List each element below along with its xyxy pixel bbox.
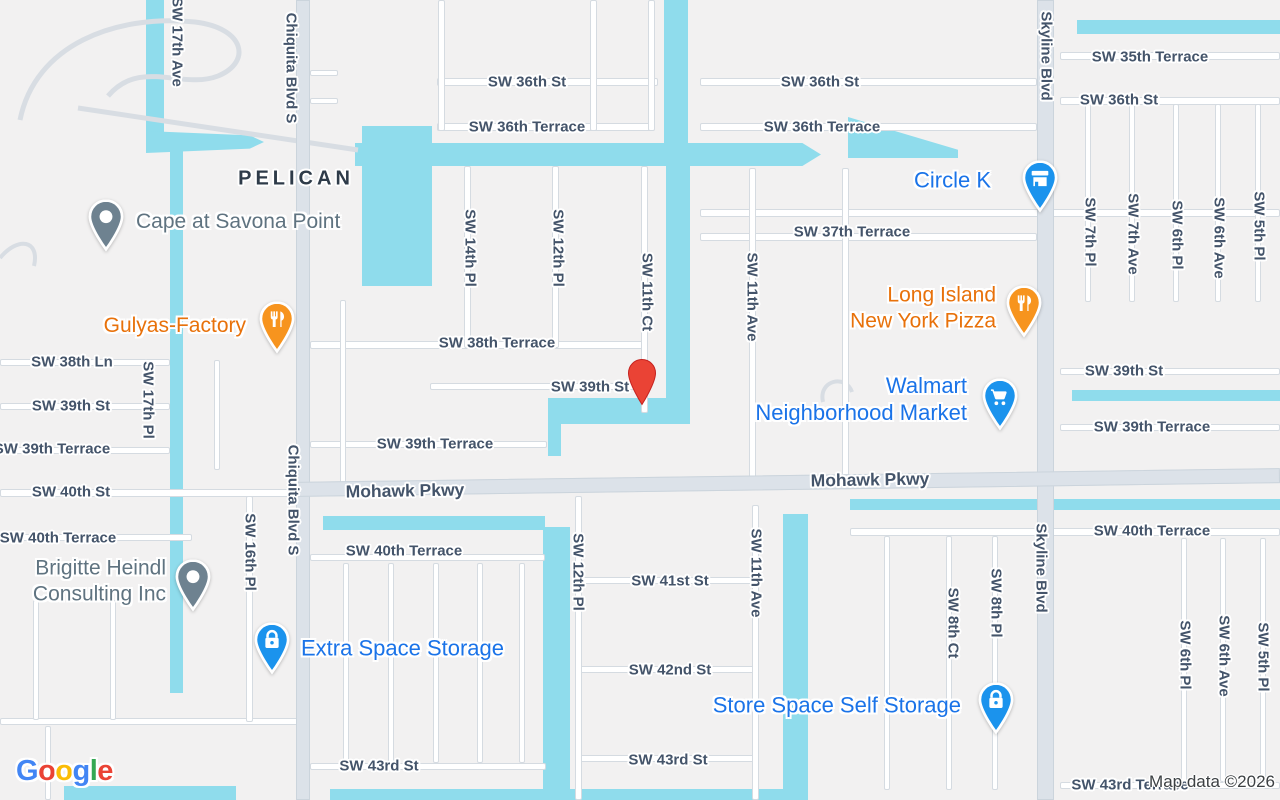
road-minor	[842, 168, 849, 480]
google-logo-letter: G	[16, 755, 38, 787]
road-minor	[343, 563, 349, 763]
street-label: SW 8th Pl	[988, 568, 1005, 637]
street-label: SW 39th Terrace	[377, 436, 493, 453]
dot-icon	[171, 559, 215, 613]
road-minor	[648, 0, 655, 131]
street-label: SW 36th Terrace	[764, 119, 880, 136]
poi-label-cape-at-savona-point[interactable]: Cape at Savona Point	[136, 209, 340, 235]
street-label: SW 39th St	[551, 379, 629, 396]
street-label: SW 36th Terrace	[469, 119, 585, 136]
road-minor	[0, 718, 298, 725]
street-label: SW 40th Terrace	[0, 530, 116, 547]
street-label: SW 41st St	[631, 573, 709, 590]
street-label: SW 17th Ave	[169, 0, 186, 87]
road-minor	[340, 300, 346, 490]
street-label: Mohawk Pkwy	[345, 479, 464, 502]
road-minor	[438, 0, 445, 131]
street-label: SW 12th Pl	[570, 533, 587, 611]
street-label: Chiquita Blvd S	[283, 13, 300, 124]
street-label: SW 36th St	[488, 74, 566, 91]
restaurant-icon	[255, 301, 299, 355]
road-minor	[477, 563, 483, 763]
street-label: SW 8th Ct	[945, 588, 962, 659]
street-label: Mohawk Pkwy	[810, 468, 929, 491]
street-label: SW 35th Terrace	[1092, 49, 1208, 66]
map-canvas[interactable]: SW 36th StSW 36th TerraceSW 36th StSW 36…	[0, 0, 1280, 800]
street-label: SW 36th St	[1080, 92, 1158, 109]
store-icon	[1018, 160, 1062, 214]
street-label: SW 40th Terrace	[346, 543, 462, 560]
poi-label-circle-k[interactable]: Circle K	[914, 168, 991, 195]
road-minor	[310, 70, 338, 76]
street-label: SW 5th Pl	[1255, 622, 1272, 691]
street-label: SW 39th Terrace	[1094, 419, 1210, 436]
poi-pin-gulyas-factory[interactable]	[255, 301, 299, 360]
street-label: SW 39th St	[32, 398, 110, 415]
street-label: SW 11th Ct	[639, 253, 656, 331]
road-skyline-blvd	[1037, 0, 1054, 800]
street-label: SW 37th Terrace	[794, 224, 910, 241]
road-minor	[214, 360, 220, 470]
lock-icon	[974, 682, 1018, 736]
road-minor	[433, 563, 439, 763]
poi-pin-circle-k[interactable]	[1018, 160, 1062, 219]
poi-pin-extra-space-storage[interactable]	[250, 622, 294, 681]
street-label: SW 11th Ave	[748, 529, 765, 618]
poi-label-brigitte-heindl-consulting-inc[interactable]: Brigitte HeindlConsulting Inc	[33, 555, 166, 606]
poi-pin-walmart-neighborhood-market[interactable]	[978, 378, 1022, 437]
road-minor	[110, 600, 116, 720]
poi-label-walmart-neighborhood-market[interactable]: WalmartNeighborhood Market	[755, 373, 967, 427]
street-label: SW 11th Ave	[744, 253, 761, 342]
street-label: SW 5th Pl	[1251, 191, 1268, 260]
street-label: SW 43rd St	[339, 758, 418, 775]
road-minor	[590, 0, 597, 131]
street-label: SW 6th Ave	[1211, 197, 1228, 278]
street-label: SW 6th Ave	[1216, 615, 1233, 696]
area-label-pelican: PELICAN	[238, 168, 354, 191]
map-attribution: Map data ©2026	[1149, 772, 1275, 792]
google-logo-letter: o	[38, 755, 55, 787]
road-minor	[519, 563, 525, 763]
road-minor	[388, 563, 394, 763]
street-label: SW 36th St	[781, 74, 859, 91]
street-label: Chiquita Blvd S	[285, 445, 302, 556]
road-minor	[850, 528, 1280, 536]
street-label: SW 39th St	[1085, 363, 1163, 380]
street-label: SW 6th Pl	[1169, 200, 1186, 269]
road-minor	[946, 536, 952, 790]
poi-label-gulyas-factory[interactable]: Gulyas-Factory	[104, 313, 246, 339]
google-logo-letter: g	[73, 755, 90, 787]
street-label: SW 16th Pl	[242, 513, 259, 591]
destination-marker[interactable]	[626, 358, 658, 411]
lock-icon	[250, 622, 294, 676]
poi-label-store-space-self-storage[interactable]: Store Space Self Storage	[713, 693, 961, 720]
street-label: SW 7th Ave	[1125, 193, 1142, 274]
street-label: SW 17th Pl	[140, 361, 157, 439]
street-label: SW 39th Terrace	[0, 441, 110, 458]
street-label: SW 7th Pl	[1082, 197, 1099, 266]
street-label: SW 14th Pl	[462, 209, 479, 287]
road-minor	[700, 209, 1280, 217]
street-label: SW 12th Pl	[550, 209, 567, 287]
street-label: SW 38th Ln	[31, 354, 113, 371]
restaurant-icon	[1002, 285, 1046, 339]
poi-pin-brigitte-heindl-consulting-inc[interactable]	[171, 559, 215, 618]
dot-icon	[84, 199, 128, 253]
street-label: Skyline Blvd	[1033, 523, 1050, 612]
street-label: SW 43rd St	[628, 752, 707, 769]
street-label: Skyline Blvd	[1038, 11, 1055, 100]
google-logo-letter: e	[97, 755, 113, 787]
street-label: SW 40th Terrace	[1094, 523, 1210, 540]
poi-pin-store-space-self-storage[interactable]	[974, 682, 1018, 741]
poi-label-long-island-new-york-pizza[interactable]: Long IslandNew York Pizza	[850, 282, 996, 333]
red-pin-icon	[626, 358, 658, 406]
street-label: SW 38th Terrace	[439, 335, 555, 352]
road-minor	[33, 600, 39, 720]
road-minor	[700, 78, 1037, 86]
poi-pin-cape-at-savona-point[interactable]	[84, 199, 128, 258]
street-label: SW 6th Pl	[1177, 620, 1194, 689]
google-logo-letter: o	[55, 755, 72, 787]
cart-icon	[978, 378, 1022, 432]
street-label: SW 40th St	[32, 484, 110, 501]
poi-label-extra-space-storage[interactable]: Extra Space Storage	[301, 636, 504, 663]
poi-pin-long-island-new-york-pizza[interactable]	[1002, 285, 1046, 344]
road-minor	[884, 536, 890, 790]
street-label: SW 42nd St	[629, 662, 712, 679]
google-logo[interactable]: Google	[16, 755, 113, 788]
road-minor	[310, 98, 338, 104]
